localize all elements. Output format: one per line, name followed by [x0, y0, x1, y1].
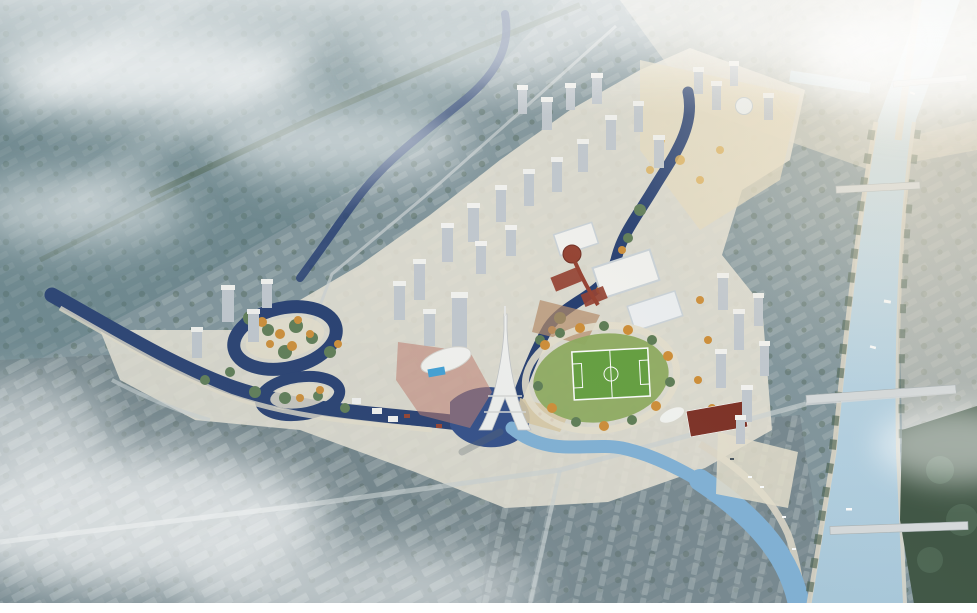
rendering-canvas — [0, 0, 977, 613]
cloud — [710, 0, 930, 80]
cloud — [205, 100, 465, 180]
bottom-margin — [0, 603, 977, 613]
aerial-city-rendering — [0, 0, 977, 613]
